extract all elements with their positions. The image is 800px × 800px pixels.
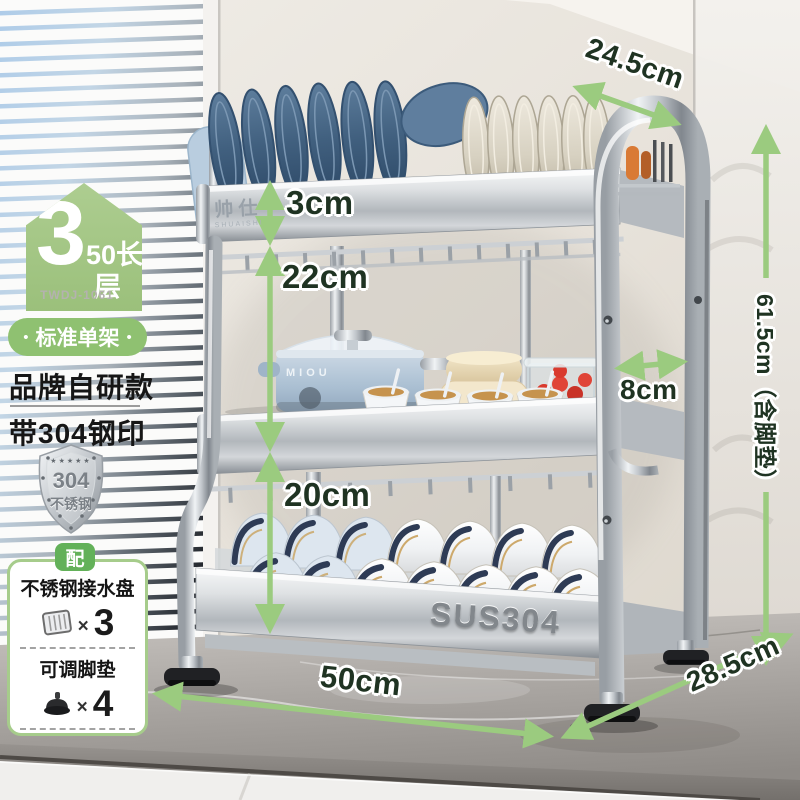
dim-label-total-height: 61.5cm（含脚垫）: [750, 294, 784, 484]
pot-brand-label: MIOU: [286, 367, 331, 379]
included-item-row: × 3: [10, 601, 145, 645]
pill-dot-left: •: [23, 329, 28, 346]
drip-tray-icon: [41, 606, 73, 640]
model-number: TWDJ-1061: [22, 288, 132, 302]
included-item-name: 可调脚垫: [10, 655, 145, 682]
item-quantity: 4: [93, 683, 114, 725]
foot-pad-icon: [42, 690, 72, 718]
dashed-divider: [20, 647, 135, 649]
included-item-name: 不锈钢接水盘: [10, 574, 145, 601]
times-sign: ×: [78, 616, 89, 638]
variant-pill: • 标准单架 •: [8, 318, 147, 356]
included-items-box: 不锈钢接水盘 × 3 可调脚垫 × 4: [7, 559, 148, 736]
shield-material: 不锈钢: [34, 494, 108, 514]
dashed-divider: [20, 728, 135, 730]
dim-label-panel-height: 3cm: [286, 184, 354, 222]
item-quantity: 3: [94, 602, 115, 644]
brand-name-cn: 帅仕: [213, 193, 263, 223]
included-tab: 配: [55, 543, 95, 571]
included-item-row: × 4: [10, 682, 145, 726]
variant-label: 标准单架: [36, 322, 120, 352]
feature-line-1: 品牌自研款: [9, 366, 154, 406]
steel-certification-shield: ★★★★★ 304 不锈钢: [34, 444, 108, 536]
dim-label-tier1-clearance: 22cm: [282, 258, 368, 296]
shield-number: 304: [34, 468, 108, 494]
shield-stars: ★★★★★: [34, 457, 108, 465]
dim-label-side-gap: 8cm: [620, 374, 678, 406]
dim-label-tier2-clearance: 20cm: [284, 476, 370, 514]
pill-dot-right: •: [127, 329, 132, 346]
brand-plate: 帅仕 SHUAISHI: [213, 193, 264, 230]
feature-divider: [10, 405, 140, 407]
product-image: 3 50长 层 TWDJ-1061 • 标准单架 • 品牌自研款 带304钢印 …: [0, 0, 800, 800]
times-sign: ×: [77, 697, 88, 719]
